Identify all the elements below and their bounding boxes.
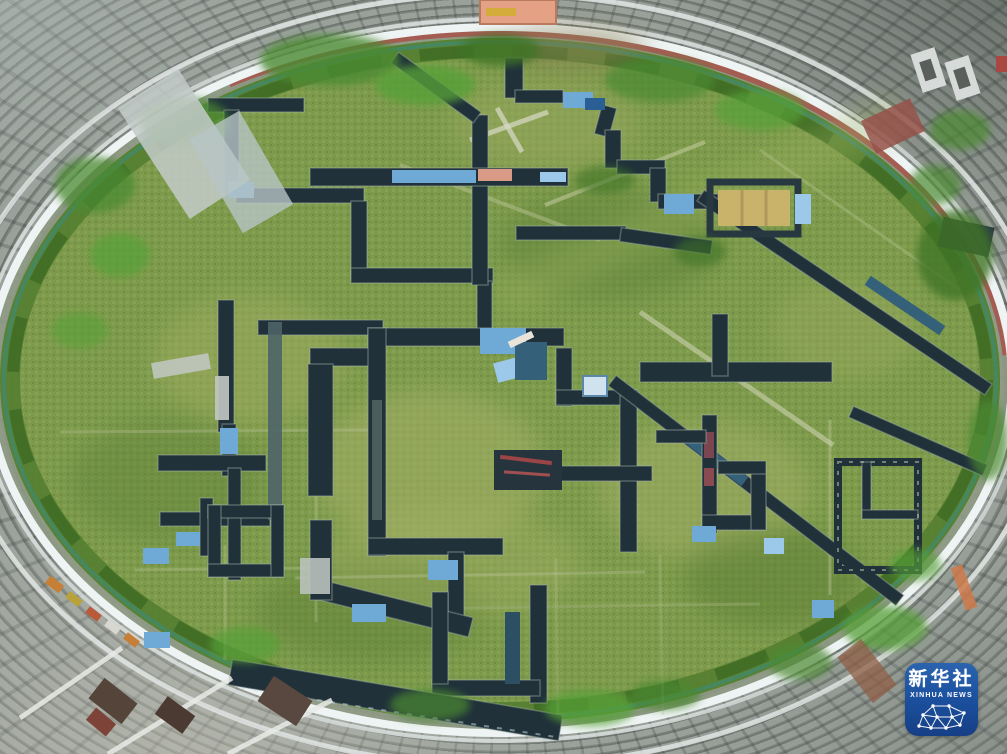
vegetation: [674, 237, 726, 267]
tarp: [392, 170, 476, 183]
trench-segment: [368, 538, 503, 555]
tarp-salmon: [478, 169, 512, 181]
trench-segment: [515, 90, 563, 103]
tarp: [428, 560, 458, 580]
tarp: [692, 526, 716, 542]
vegetation: [930, 110, 990, 150]
excavation-site-elements: [20, 0, 1007, 754]
vegetation: [390, 689, 470, 721]
vegetation: [375, 65, 475, 105]
tarp: [812, 600, 834, 618]
tarp: [764, 538, 784, 554]
trench-segment: [271, 505, 284, 577]
vegetation: [909, 165, 961, 205]
vegetation: [605, 58, 715, 102]
tarp: [540, 172, 566, 182]
vegetation: [630, 680, 700, 710]
vegetation: [768, 644, 832, 680]
trench-segment: [862, 510, 918, 519]
tarp: [144, 632, 170, 648]
trench-segment: [640, 362, 832, 382]
trench-segment: [472, 115, 488, 285]
sandbag-edge: [372, 400, 382, 520]
aerial-photo-stadium-excavation: 新华社 XINHUA NEWS: [0, 0, 1007, 754]
trench-segment: [158, 455, 266, 471]
trench-segment: [718, 461, 766, 474]
vegetation: [90, 233, 150, 277]
tarp: [220, 428, 238, 454]
tarp: [515, 342, 547, 380]
trench-segment: [228, 468, 241, 580]
xinhua-logo-chinese: 新华社: [908, 670, 974, 689]
tarp: [352, 604, 386, 622]
xinhua-logo-english: XINHUA NEWS: [910, 692, 973, 699]
vegetation: [917, 210, 993, 300]
vegetation: [460, 34, 540, 66]
covered-box: [583, 376, 607, 396]
vegetation: [889, 549, 941, 581]
tarp: [176, 532, 200, 546]
tarp: [795, 194, 811, 224]
track-marking: [951, 564, 978, 610]
stand-sign: [486, 8, 516, 16]
trench-segment: [751, 468, 766, 530]
vegetation: [968, 400, 1007, 480]
tarp: [664, 194, 694, 214]
network-globe-icon: [913, 702, 971, 730]
vegetation: [575, 166, 635, 194]
tarp: [143, 548, 169, 564]
trench-segment: [505, 612, 520, 684]
stony-trench: [268, 322, 282, 520]
tarp-gray: [215, 376, 229, 420]
trench-segment: [712, 314, 728, 376]
vegetation: [715, 90, 805, 130]
vegetation: [55, 157, 135, 213]
trench-red-cover: [704, 468, 714, 486]
xinhua-watermark-logo: 新华社 XINHUA NEWS: [905, 663, 978, 736]
trench-segment: [656, 430, 706, 443]
tarp-gray: [300, 558, 330, 594]
trench-segment: [432, 592, 448, 684]
vegetation: [545, 690, 635, 726]
trench-segment: [516, 226, 626, 240]
stand-red-sign: [996, 56, 1007, 72]
vegetation: [52, 312, 108, 348]
trench-segment: [308, 364, 333, 496]
tarp: [585, 98, 605, 110]
vehicle: [45, 576, 64, 593]
stadium-field-scene: [0, 0, 1007, 754]
excavation-pit: [718, 190, 790, 226]
vegetation: [210, 627, 280, 663]
